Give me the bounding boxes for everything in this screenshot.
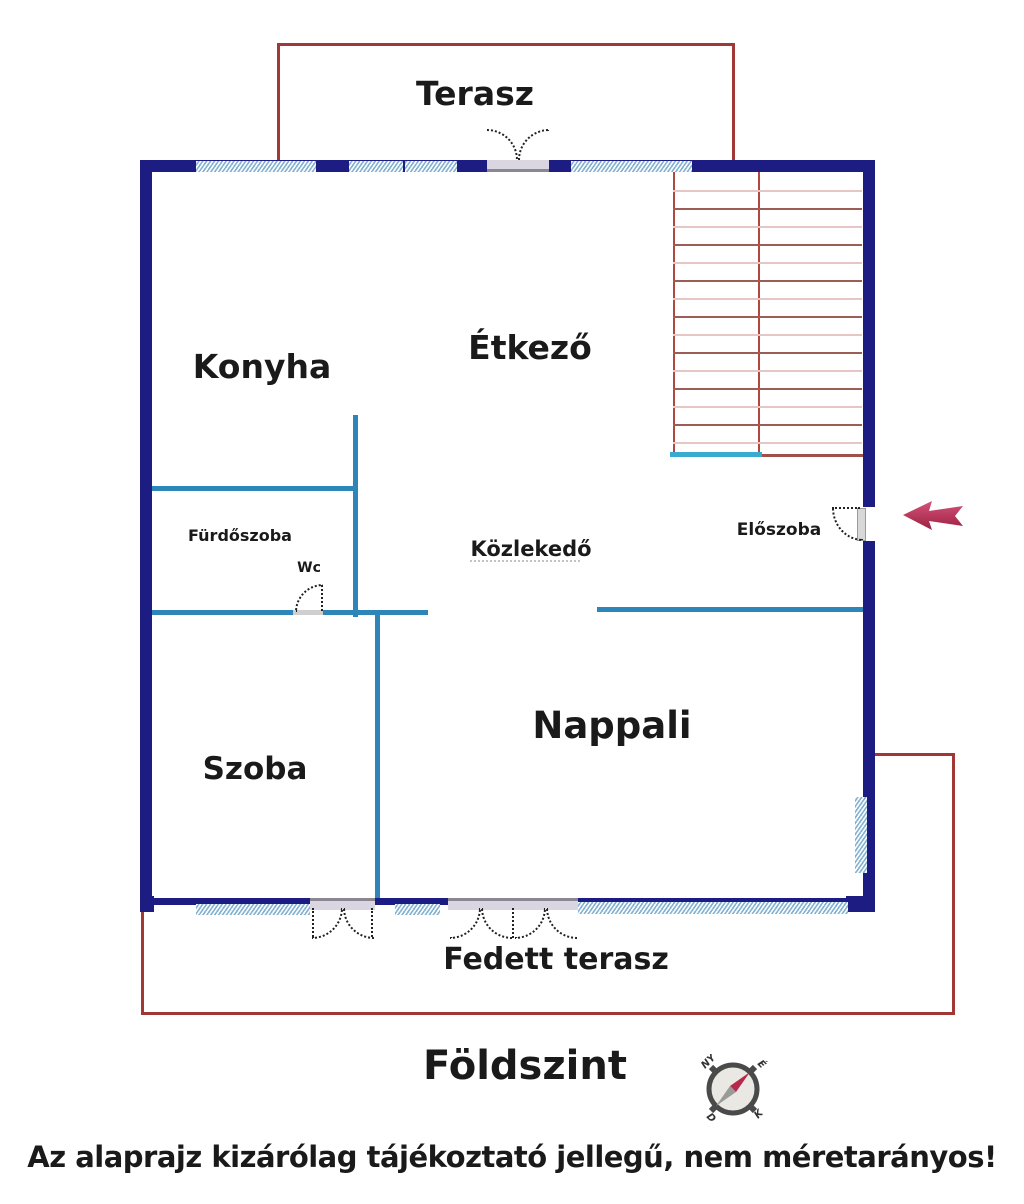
nappali-door-arc-1 xyxy=(450,908,481,939)
iwall-szoba-nappali xyxy=(375,612,380,898)
compass-icon: NY É D K xyxy=(698,1054,772,1128)
room-label-kozlekedo: Közlekedő xyxy=(431,538,631,561)
terasz-door-arc-right xyxy=(518,129,549,160)
room-label-wc: Wc xyxy=(284,561,334,576)
window-bottom-3 xyxy=(578,902,848,914)
nappali-door-arc-2 xyxy=(481,908,512,939)
staircase-base-teal xyxy=(670,452,762,457)
iwall-furdoszoba-szoba xyxy=(152,610,428,615)
stair-step-line xyxy=(673,352,862,354)
iwall-eloszoba-nappali xyxy=(597,607,863,612)
wall-corner-bottom-left xyxy=(140,896,154,912)
window-top-2-mullion xyxy=(403,161,405,172)
stair-step-line xyxy=(673,388,862,390)
window-bottom-1 xyxy=(196,904,310,915)
room-label-szoba: Szoba xyxy=(155,752,355,786)
entry-arrow-icon xyxy=(898,498,968,534)
stair-step-line xyxy=(673,406,862,408)
stair-step-line xyxy=(673,208,862,210)
terasz-outline-right xyxy=(732,43,735,165)
stair-step-line xyxy=(673,262,862,264)
terasz-door-sill xyxy=(487,160,549,172)
window-top-1 xyxy=(196,161,316,172)
staircase-left-edge xyxy=(673,172,675,453)
floor-title: Földszint xyxy=(300,1044,750,1088)
fedett-terasz-outline-top xyxy=(875,753,955,756)
room-label-konyha: Konyha xyxy=(162,349,362,385)
terasz-outline-left xyxy=(277,43,280,165)
floorplan-page: Terasz xyxy=(0,0,1024,1204)
staircase xyxy=(673,172,862,453)
szoba-door-arc-left xyxy=(312,908,343,939)
fedett-terasz-outline-right xyxy=(952,753,955,1015)
wc-door-leaf xyxy=(321,585,323,611)
iwall-konyha-furdoszoba xyxy=(152,486,358,491)
nappali-door-arc-3 xyxy=(515,908,546,939)
room-label-terasz: Terasz xyxy=(375,76,575,112)
szoba-door-leaf-right xyxy=(371,908,373,937)
stair-step-line xyxy=(673,244,862,246)
compass-label-ne: É xyxy=(755,1057,769,1071)
room-label-eloszoba: Előszoba xyxy=(704,521,854,540)
room-label-etkezo: Étkező xyxy=(430,330,630,366)
room-label-furdoszoba: Fürdőszoba xyxy=(150,527,330,545)
stair-step-line xyxy=(673,442,862,444)
window-top-3 xyxy=(571,161,692,172)
stair-step-line xyxy=(673,226,862,228)
stair-step-line xyxy=(673,190,862,192)
window-bottom-2 xyxy=(395,904,440,915)
nappali-door-divider xyxy=(512,908,514,938)
room-label-fedett-terasz: Fedett terasz xyxy=(406,943,706,976)
stair-step-line xyxy=(673,316,862,318)
wall-corner-bottom-right xyxy=(846,896,875,912)
disclaimer-text: Az alaprajz kizárólag tájékoztató jelleg… xyxy=(0,1142,1024,1174)
terasz-door-arc-left xyxy=(487,129,518,160)
staircase-base-right xyxy=(762,454,863,457)
fedett-terasz-outline-bottom xyxy=(141,1012,955,1015)
fedett-terasz-outline-left xyxy=(141,908,144,1015)
window-right-nappali xyxy=(855,797,867,873)
stair-step-line xyxy=(673,370,862,372)
stair-step-line xyxy=(673,424,862,426)
staircase-divider xyxy=(758,172,760,453)
stair-step-line xyxy=(673,298,862,300)
iwall-konyha-kozlekedo xyxy=(353,415,358,617)
nappali-door-arc-4 xyxy=(546,908,577,939)
compass-label-sw: D xyxy=(704,1111,718,1125)
stair-step-line xyxy=(673,280,862,282)
wc-door-arc xyxy=(295,584,323,612)
szoba-door-arc-right xyxy=(343,908,374,939)
room-label-nappali: Nappali xyxy=(492,706,732,747)
szoba-door-leaf-left xyxy=(312,908,314,937)
stair-step-line xyxy=(673,334,862,336)
terasz-outline-top xyxy=(277,43,735,46)
